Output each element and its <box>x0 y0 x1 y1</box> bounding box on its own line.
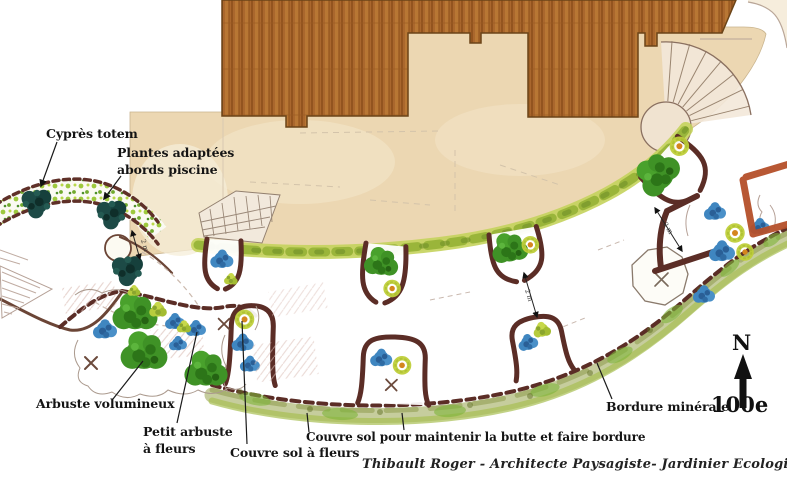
small-flowering-shrub <box>128 285 141 296</box>
label-plantes-adaptees: Plantes adaptées abords piscine <box>117 145 234 178</box>
orange-flower <box>395 358 410 373</box>
label-arbuste-volumineux: Arbuste volumineux <box>36 396 174 413</box>
orange-flower <box>523 237 539 253</box>
small-flowering-shrub <box>149 302 167 317</box>
label-line: à fleurs <box>143 441 233 458</box>
planting-niche-1 <box>203 239 242 293</box>
label-couvre-sol-fleurs: Couvre sol à fleurs <box>230 445 359 462</box>
butte-arch-3 <box>505 312 574 381</box>
north-label: N <box>732 330 751 355</box>
cypress-totem-1 <box>22 190 52 219</box>
blue-flower-clump <box>704 202 726 220</box>
dimension-text: 2 m <box>523 288 534 302</box>
planting-niche-2 <box>359 243 407 308</box>
label-line: abords piscine <box>117 162 234 179</box>
cypress-totem-2 <box>97 201 127 230</box>
scale-label: 100e <box>711 392 768 417</box>
hatch-wedge <box>0 250 52 318</box>
orange-flower <box>237 312 253 328</box>
butte-arch-2 <box>358 336 431 405</box>
label-cypres-totem: Cyprès totem <box>46 126 138 143</box>
label-line: Petit arbuste <box>143 424 233 441</box>
orange-flower <box>385 281 400 296</box>
garden-plan-drawing: 2 m 2 m 2 m Cyprès totem Plantes adaptée… <box>0 0 787 487</box>
x-mark <box>85 357 97 369</box>
cypress-totem-3 <box>112 256 143 286</box>
label-couvre-sol-butte: Couvre sol pour maintenir la butte et fa… <box>306 430 645 446</box>
blue-flower-clump <box>709 240 735 261</box>
planting-niche-3 <box>488 226 547 288</box>
x-mark <box>219 319 230 330</box>
label-line: Plantes adaptées <box>117 145 234 162</box>
credit-signature: Thibault Roger - Architecte Paysagiste- … <box>362 457 787 472</box>
label-petit-arbuste: Petit arbuste à fleurs <box>143 424 233 457</box>
orange-flower <box>728 226 743 241</box>
